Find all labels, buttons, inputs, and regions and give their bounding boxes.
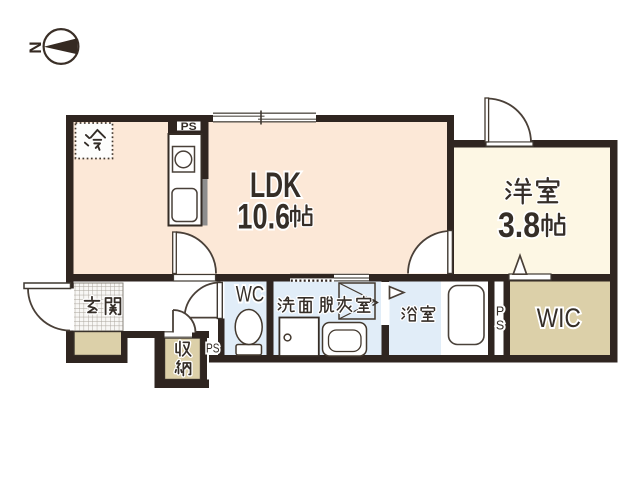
svg-text:3.8: 3.8 [498, 206, 540, 245]
svg-text:N: N [25, 41, 44, 53]
svg-text:P: P [496, 305, 504, 319]
svg-text:PS: PS [181, 121, 197, 133]
svg-text:WC: WC [236, 281, 265, 306]
svg-text:PS: PS [206, 341, 220, 356]
svg-text:S: S [496, 319, 504, 333]
svg-text:10.6: 10.6 [237, 197, 290, 236]
svg-text:WIC: WIC [537, 303, 581, 333]
